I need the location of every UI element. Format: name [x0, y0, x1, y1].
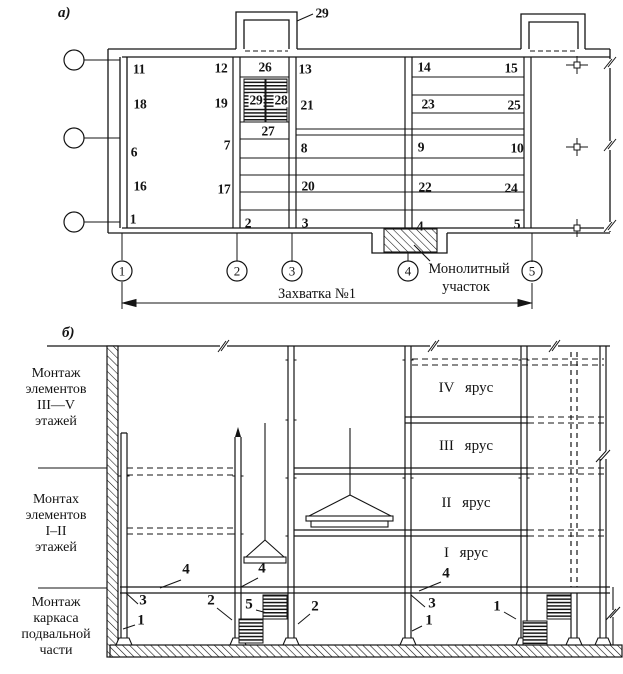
hoisted-slab-1 — [244, 557, 286, 563]
future-column-marks — [566, 56, 588, 237]
figure-construction-scheme: а) б) 29 Монолитный участок Захватка №1 … — [0, 0, 623, 674]
section-slabs-future — [127, 359, 604, 536]
plan-roof-bays — [236, 12, 585, 51]
section-frame — [38, 346, 610, 588]
section-callout-leaders — [123, 578, 516, 631]
sling-triangle-2 — [309, 495, 391, 516]
section-columns — [119, 346, 607, 640]
crane-slings — [244, 423, 393, 563]
future-column-dashed — [571, 352, 577, 587]
column-axis-bubbles — [112, 233, 542, 281]
figure-linework — [0, 0, 623, 674]
column-pointed-tip — [235, 427, 241, 437]
hoisted-slab-2 — [306, 516, 393, 521]
row-axis-bubbles — [64, 50, 120, 232]
plan-stair-hatch — [244, 79, 287, 122]
bay-callout-leader — [297, 14, 313, 21]
section-break-marks — [218, 340, 620, 620]
existing-wall-hatch — [107, 346, 118, 657]
zahvatka-dimension — [122, 282, 532, 309]
sling-triangle-1 — [246, 540, 284, 557]
monolithic-section-hatch — [384, 229, 437, 261]
section-slabs — [120, 417, 610, 593]
stage-separators — [38, 468, 107, 588]
plan-outline — [108, 49, 610, 253]
